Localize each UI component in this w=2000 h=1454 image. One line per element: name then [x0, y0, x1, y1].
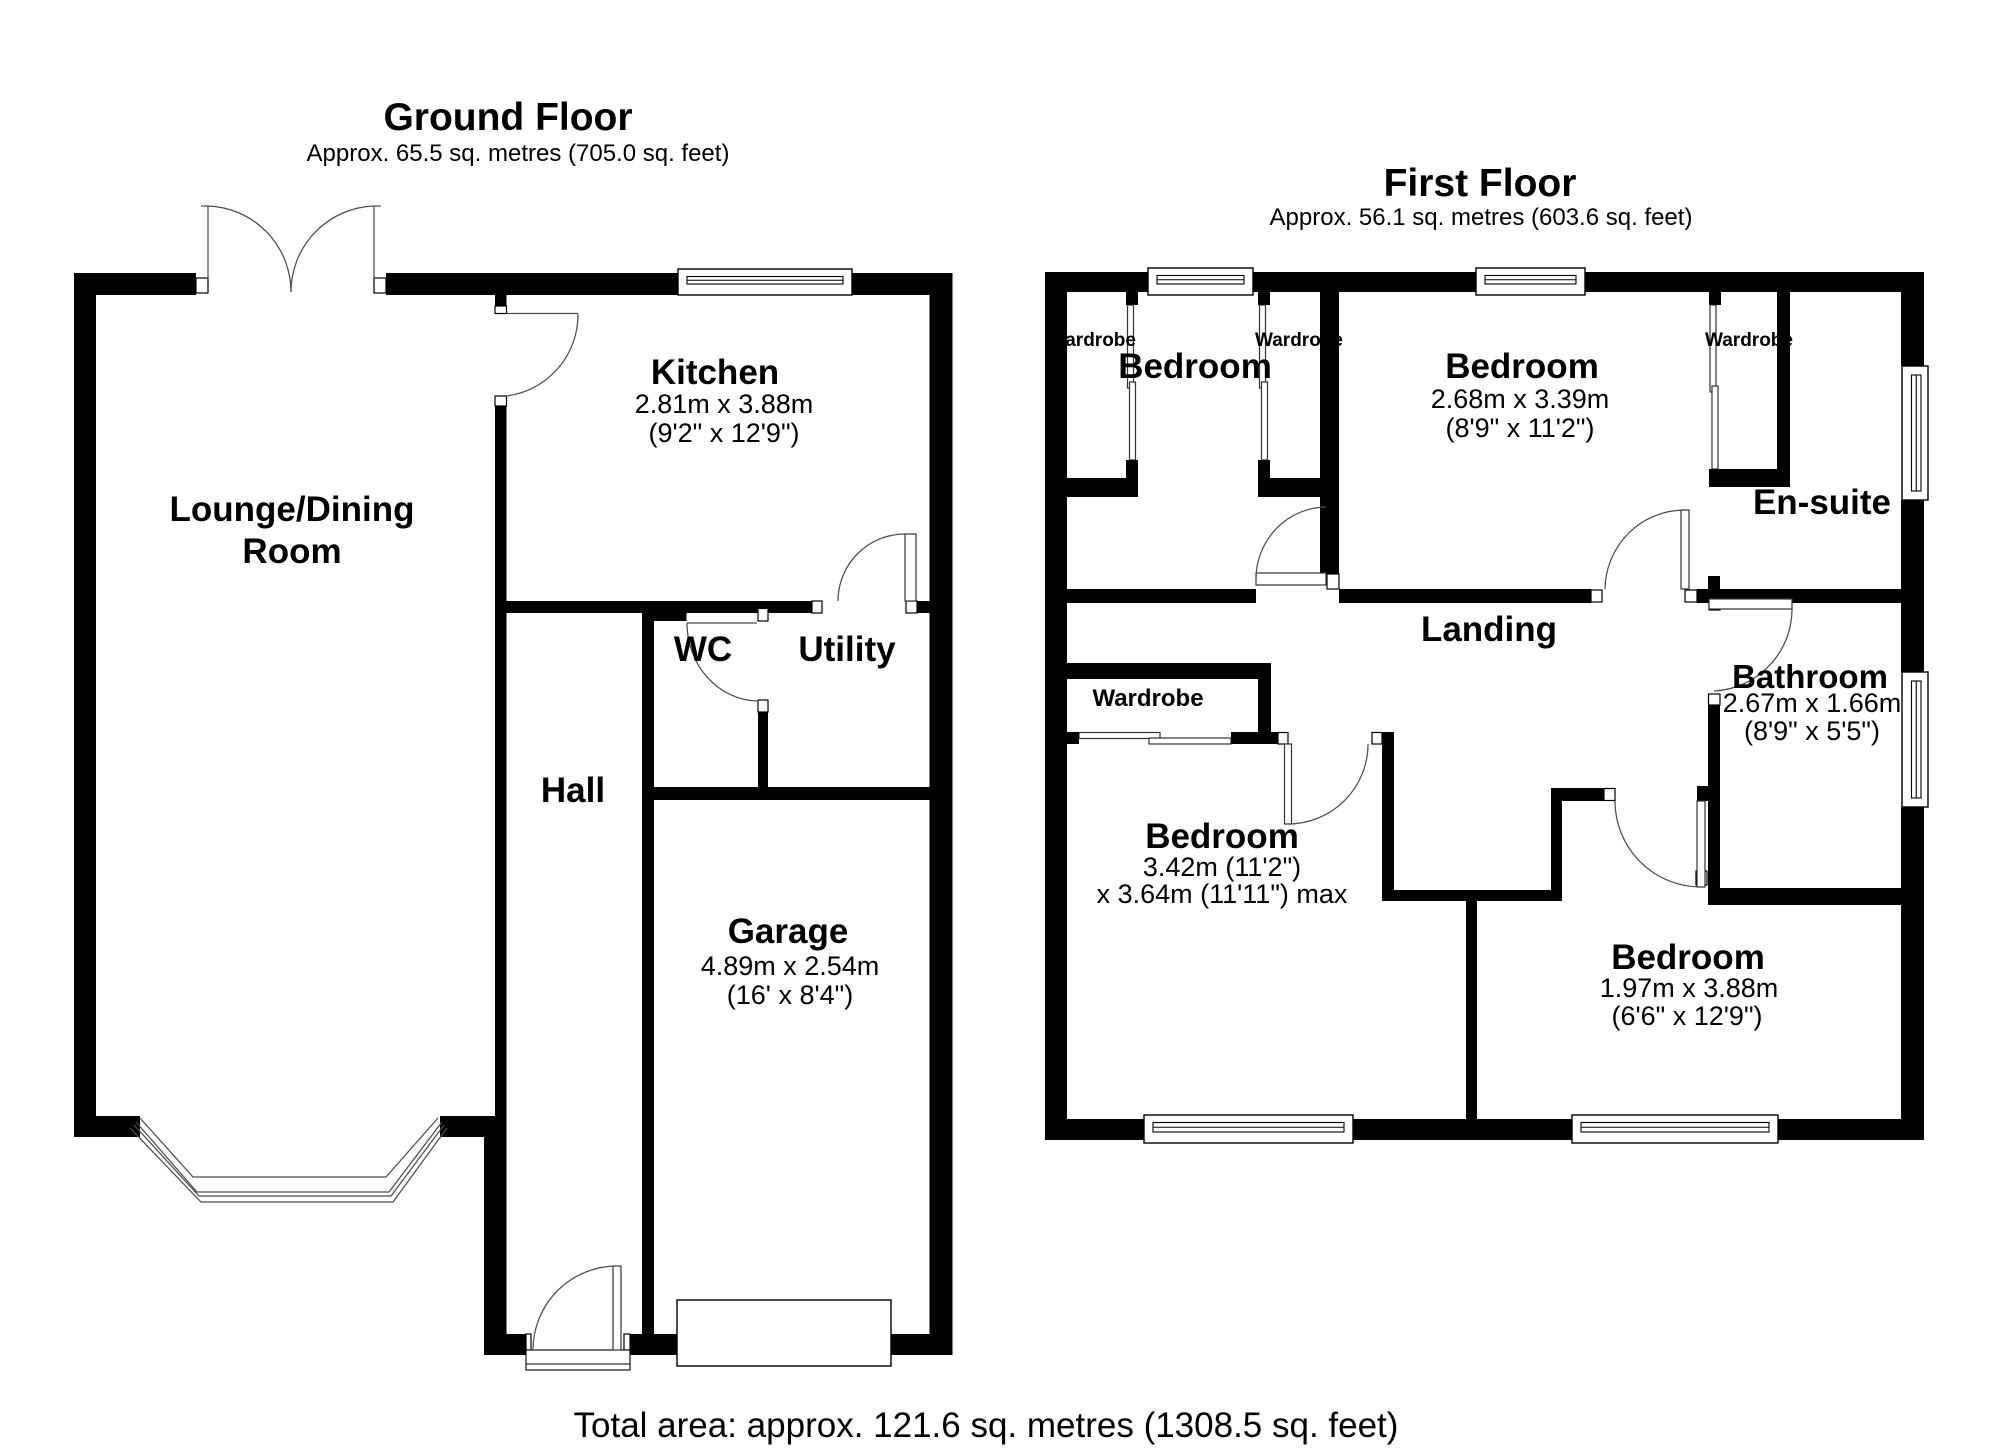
svg-text:2.81m x 3.88m: 2.81m x 3.88m: [635, 389, 814, 419]
svg-text:Garage: Garage: [728, 912, 849, 951]
svg-text:x 3.64m (11'11") max: x 3.64m (11'11") max: [1097, 879, 1348, 909]
svg-text:Total area: approx. 121.6 sq.: Total area: approx. 121.6 sq. metres (13…: [574, 1406, 1399, 1445]
svg-text:Approx. 65.5 sq. metres (705.0: Approx. 65.5 sq. metres (705.0 sq. feet): [307, 140, 730, 167]
svg-text:(9'2" x 12'9"): (9'2" x 12'9"): [648, 418, 799, 448]
svg-text:WC: WC: [674, 630, 732, 669]
svg-text:2.68m x 3.39m: 2.68m x 3.39m: [1431, 384, 1610, 414]
svg-text:Approx. 56.1 sq. metres (603.6: Approx. 56.1 sq. metres (603.6 sq. feet): [1270, 204, 1693, 231]
svg-text:(8'9" x 11'2"): (8'9" x 11'2"): [1445, 413, 1594, 443]
svg-text:Bedroom: Bedroom: [1145, 817, 1299, 856]
svg-text:(16' x 8'4"): (16' x 8'4"): [727, 980, 853, 1010]
svg-text:Landing: Landing: [1421, 610, 1557, 649]
svg-text:(6'6" x 12'9"): (6'6" x 12'9"): [1611, 1001, 1762, 1031]
svg-text:3.42m (11'2"): 3.42m (11'2"): [1143, 852, 1301, 882]
svg-text:1.97m x 3.88m: 1.97m x 3.88m: [1600, 973, 1779, 1003]
svg-text:Hall: Hall: [541, 771, 605, 810]
svg-text:Utility: Utility: [798, 630, 896, 669]
svg-text:(8'9" x 5'5"): (8'9" x 5'5"): [1744, 716, 1880, 746]
svg-text:En-suite: En-suite: [1753, 483, 1891, 522]
svg-text:Room: Room: [242, 532, 341, 571]
svg-text:Wardrobe: Wardrobe: [1092, 685, 1203, 712]
svg-text:First Floor: First Floor: [1384, 162, 1577, 205]
svg-text:Bedroom: Bedroom: [1445, 347, 1599, 386]
svg-text:Kitchen: Kitchen: [651, 353, 779, 392]
svg-text:2.67m x 1.66m: 2.67m x 1.66m: [1723, 688, 1902, 718]
svg-text:Lounge/Dining: Lounge/Dining: [170, 490, 415, 529]
svg-text:Bedroom: Bedroom: [1118, 347, 1272, 386]
svg-text:4.89m x 2.54m: 4.89m x 2.54m: [701, 951, 880, 981]
svg-text:Bedroom: Bedroom: [1611, 938, 1765, 977]
svg-text:Ground Floor: Ground Floor: [383, 96, 632, 139]
